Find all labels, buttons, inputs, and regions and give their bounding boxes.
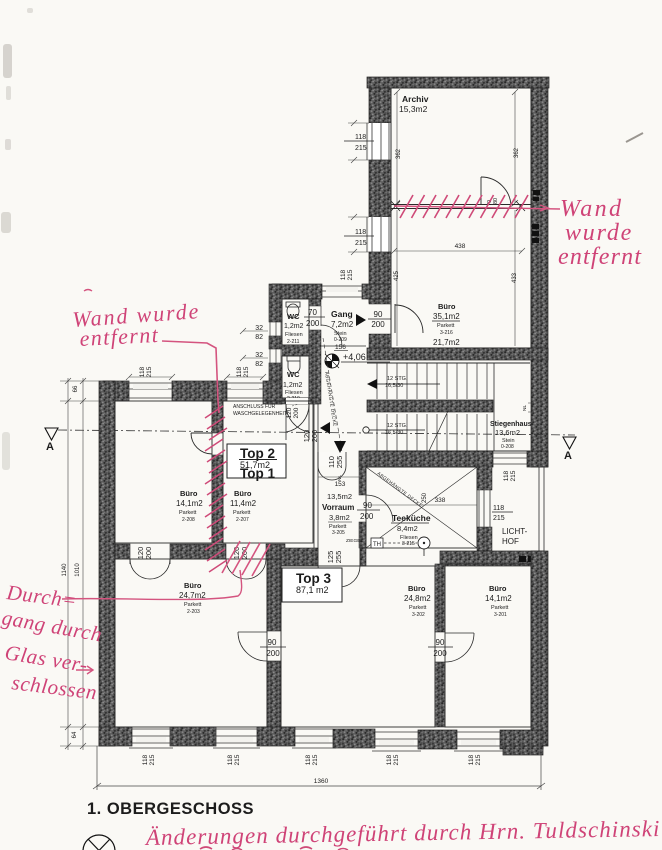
svg-text:A: A xyxy=(564,450,572,462)
svg-text:1,2m2: 1,2m2 xyxy=(284,323,304,330)
svg-text:90: 90 xyxy=(268,638,277,647)
svg-text:Vorraum: Vorraum xyxy=(322,503,354,512)
svg-text:Parkett: Parkett xyxy=(233,510,251,516)
svg-text:Gang: Gang xyxy=(331,309,353,319)
svg-text:118: 118 xyxy=(493,505,504,512)
svg-text:200: 200 xyxy=(293,407,300,418)
svg-text:120: 120 xyxy=(286,407,293,418)
svg-text:215: 215 xyxy=(355,145,367,152)
svg-text:215: 215 xyxy=(355,240,367,247)
svg-text:3,8m2: 3,8m2 xyxy=(329,513,350,522)
svg-text:338: 338 xyxy=(435,497,446,504)
svg-text:HOF: HOF xyxy=(502,537,519,546)
svg-text:255: 255 xyxy=(334,551,343,564)
svg-text:Teeküche: Teeküche xyxy=(392,513,431,523)
svg-text:200: 200 xyxy=(371,320,385,329)
svg-text:215: 215 xyxy=(510,470,517,481)
svg-text:8,4m2: 8,4m2 xyxy=(397,524,418,533)
svg-text:3-205: 3-205 xyxy=(332,530,345,536)
svg-text:Archiv: Archiv xyxy=(402,94,429,104)
svg-text:64: 64 xyxy=(72,731,78,738)
svg-text:Parkett: Parkett xyxy=(437,323,455,329)
svg-text:1. OBERGESCHOSS: 1. OBERGESCHOSS xyxy=(87,800,254,818)
svg-text:Fliesen: Fliesen xyxy=(285,332,303,338)
svg-text:16,5/30: 16,5/30 xyxy=(385,383,403,389)
svg-text:438: 438 xyxy=(455,243,466,250)
svg-text:215: 215 xyxy=(243,366,250,377)
svg-text:362: 362 xyxy=(396,148,402,159)
svg-text:80: 80 xyxy=(493,198,499,204)
svg-text:215: 215 xyxy=(347,269,354,280)
svg-text:ZIEGEL: ZIEGEL xyxy=(346,538,363,544)
svg-text:entfernt: entfernt xyxy=(79,322,160,351)
svg-text:118: 118 xyxy=(503,470,510,481)
svg-text:0-208: 0-208 xyxy=(501,444,514,450)
svg-text:LICHT-: LICHT- xyxy=(502,527,528,536)
svg-text:wurde: wurde xyxy=(565,220,633,246)
svg-text:Top 2: Top 2 xyxy=(240,446,275,461)
svg-text:13,5m2: 13,5m2 xyxy=(327,492,352,501)
svg-text:215: 215 xyxy=(312,754,319,765)
svg-text:12 STG.: 12 STG. xyxy=(387,423,408,429)
svg-text:90: 90 xyxy=(374,310,383,319)
svg-text:200: 200 xyxy=(266,649,280,658)
svg-text:NL: NL xyxy=(522,405,528,411)
svg-text:82: 82 xyxy=(255,334,263,341)
svg-text:200: 200 xyxy=(306,319,320,328)
svg-text:118: 118 xyxy=(142,754,149,765)
svg-text:14,1m2: 14,1m2 xyxy=(176,499,203,508)
svg-text:2-211: 2-211 xyxy=(287,339,300,345)
svg-text:13,6m2: 13,6m2 xyxy=(495,428,520,437)
svg-text:3-202: 3-202 xyxy=(412,612,425,618)
svg-text:Büro: Büro xyxy=(408,584,426,593)
svg-text:82: 82 xyxy=(255,361,263,368)
svg-text:1,2m2: 1,2m2 xyxy=(283,382,303,389)
svg-text:425: 425 xyxy=(394,270,400,281)
svg-text:215: 215 xyxy=(475,754,482,765)
svg-text:118: 118 xyxy=(468,754,475,765)
svg-text:118: 118 xyxy=(340,269,347,280)
svg-text:Parkett: Parkett xyxy=(179,510,197,516)
svg-text:1360: 1360 xyxy=(314,778,329,785)
svg-text:11,4m2: 11,4m2 xyxy=(230,499,257,508)
svg-text:433: 433 xyxy=(512,272,518,283)
svg-text:90: 90 xyxy=(363,501,372,510)
svg-text:Parkett: Parkett xyxy=(409,605,427,611)
svg-text:215: 215 xyxy=(493,515,505,522)
svg-text:WC: WC xyxy=(287,370,300,379)
svg-text:215: 215 xyxy=(149,754,156,765)
svg-text:entfernt: entfernt xyxy=(558,244,642,270)
svg-text:Büro: Büro xyxy=(438,302,456,311)
svg-text:215: 215 xyxy=(146,366,153,377)
svg-text:Parkett: Parkett xyxy=(491,605,509,611)
svg-text:Stiegenhaus: Stiegenhaus xyxy=(490,421,532,428)
svg-text:0-209: 0-209 xyxy=(334,337,347,343)
svg-text:250: 250 xyxy=(422,492,428,503)
svg-text:66: 66 xyxy=(73,385,79,392)
svg-text:Büro: Büro xyxy=(180,489,198,498)
svg-text:1140: 1140 xyxy=(62,563,68,577)
svg-text:118: 118 xyxy=(236,366,243,377)
svg-text:32: 32 xyxy=(255,352,263,359)
svg-text:200: 200 xyxy=(360,512,374,521)
svg-text:3-216: 3-216 xyxy=(440,330,453,336)
svg-text:35,1m2: 35,1m2 xyxy=(433,312,460,321)
svg-text:1010: 1010 xyxy=(75,563,81,577)
svg-text:Büro: Büro xyxy=(234,489,252,498)
svg-text:118: 118 xyxy=(355,134,366,141)
svg-text:118: 118 xyxy=(139,366,146,377)
svg-text:Wand: Wand xyxy=(560,196,623,222)
svg-text:Büro: Büro xyxy=(184,581,202,590)
svg-text:WC: WC xyxy=(287,312,300,321)
svg-text:3-215: 3-215 xyxy=(402,541,415,547)
svg-text:21,7m2: 21,7m2 xyxy=(433,338,460,347)
svg-text:362: 362 xyxy=(514,147,520,158)
svg-text:153: 153 xyxy=(335,481,346,488)
svg-text:15,3m2: 15,3m2 xyxy=(399,104,428,114)
svg-text:90: 90 xyxy=(436,638,445,647)
svg-text:2-208: 2-208 xyxy=(182,517,195,523)
svg-text:118: 118 xyxy=(355,229,366,236)
svg-text:14,1m2: 14,1m2 xyxy=(485,594,512,603)
svg-text:255: 255 xyxy=(335,456,344,469)
svg-text:Top 3: Top 3 xyxy=(296,571,331,586)
svg-text:+4,06: +4,06 xyxy=(343,352,366,362)
svg-text:118: 118 xyxy=(227,754,234,765)
svg-text:24,8m2: 24,8m2 xyxy=(404,594,431,603)
svg-text:215: 215 xyxy=(234,754,241,765)
svg-text:87,1 m2: 87,1 m2 xyxy=(296,585,329,595)
svg-text:200: 200 xyxy=(144,547,153,560)
svg-text:2-203: 2-203 xyxy=(187,609,200,615)
svg-text:7,2m2: 7,2m2 xyxy=(331,320,354,329)
svg-text:118: 118 xyxy=(305,754,312,765)
svg-text:Büro: Büro xyxy=(489,584,507,593)
svg-text:2-207: 2-207 xyxy=(236,517,249,523)
svg-text:A: A xyxy=(46,441,54,453)
svg-text:156: 156 xyxy=(335,344,346,351)
svg-text:70: 70 xyxy=(308,308,317,317)
svg-text:Top 1: Top 1 xyxy=(240,466,275,481)
svg-text:TH: TH xyxy=(373,542,381,548)
svg-text:118: 118 xyxy=(386,754,393,765)
svg-text:12 STG.: 12 STG. xyxy=(387,376,408,382)
svg-text:3-201: 3-201 xyxy=(494,612,507,618)
svg-text:Parkett: Parkett xyxy=(184,602,202,608)
svg-text:WASCHGELEGENHEIT: WASCHGELEGENHEIT xyxy=(233,411,287,417)
svg-text:215: 215 xyxy=(393,754,400,765)
svg-text:32: 32 xyxy=(255,325,263,332)
